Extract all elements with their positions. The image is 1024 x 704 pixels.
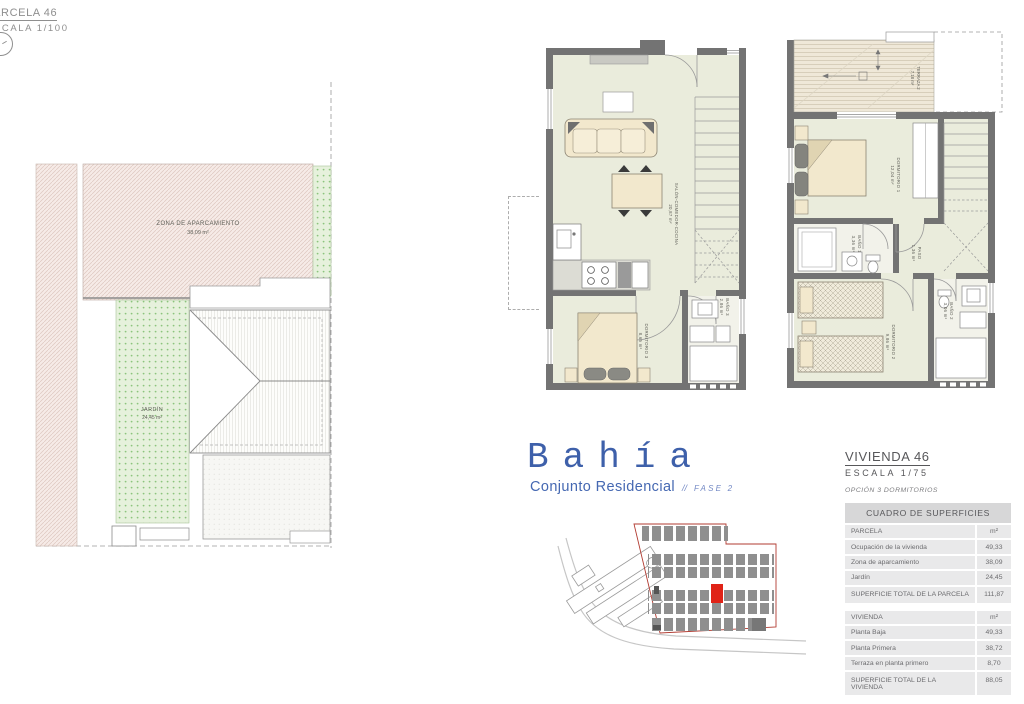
table-row: Planta Primera 38,72 <box>845 641 1011 654</box>
gf-salon-label: SALÓN-COMEDOR-COCINA <box>674 183 679 246</box>
ff-terraza-label: TERRAZA 2 <box>916 66 921 90</box>
parking-label: ZONA DE APARCAMIENTO <box>156 221 239 227</box>
ff-dorm1-label: DORMITORIO 1 <box>896 157 901 192</box>
first-floor-plan: TERRAZA 2 7,18 m² <box>778 28 1010 398</box>
row-value: 8,70 <box>977 657 1011 670</box>
gf-salon-area: 20,87 m² <box>668 204 673 224</box>
row-value: 38,09 <box>977 556 1011 569</box>
sidewalk-strip <box>36 164 77 546</box>
gf-coffee-table <box>603 92 633 112</box>
row-value: 88,05 <box>977 672 1011 695</box>
gf-sofa <box>565 119 657 157</box>
ff-dorm2-area: 9,86 m² <box>885 334 890 351</box>
table-row-total: SUPERFICIE TOTAL DE LA VIVIENDA 88,05 <box>845 672 1011 695</box>
ff-paso-label: PASO <box>917 247 922 260</box>
row-label: SUPERFICIE TOTAL DE LA VIVIENDA <box>845 672 975 695</box>
ff-bano2-area: 3,06 m² <box>943 303 948 320</box>
sheet-corner-title: PARCELA 46 ESCALA 1/100 <box>0 2 69 35</box>
table-header: CUADRO DE SUPERFICIES <box>845 503 1011 523</box>
unit-scale: ESCALA 1/75 <box>845 468 1011 478</box>
table-row: VIVIENDA m² <box>845 611 1011 624</box>
row-value: m² <box>977 525 1011 538</box>
ground-floor-plan: SALÓN-COMEDOR-COCINA 20,87 m² DORMITORIO… <box>540 34 752 396</box>
table-row: PARCELA m² <box>845 525 1011 538</box>
ff-dorm1-area: 12,04 m² <box>890 165 895 185</box>
gf-tv-unit <box>590 55 648 64</box>
gf-bano3-label: BAÑO 3 <box>725 298 730 316</box>
row-value: 24,45 <box>977 571 1011 584</box>
gf-dorm3-area: 8,65 m² <box>638 333 643 350</box>
map-selected-unit <box>711 584 723 603</box>
row-label: Jardín <box>845 571 975 584</box>
ff-terraza-area: 7,18 m² <box>910 71 915 86</box>
neighbor-unit-dashed <box>508 196 539 310</box>
unit-title: VIVIENDA 46 <box>845 449 930 466</box>
plan-sheet: PARCELA 46 ESCALA 1/100 <box>0 0 1024 704</box>
parking-area-value: 38,09 m² <box>187 230 209 236</box>
ff-dorm2-label: DORMITORIO 2 <box>891 324 896 359</box>
brand-phase: FASE 2 <box>694 484 734 493</box>
green-strip-right <box>313 166 331 296</box>
row-label: Planta Primera <box>845 641 975 654</box>
row-label: SUPERFICIE TOTAL DE LA PARCELA <box>845 587 975 603</box>
ff-bano1-area: 3,36 m² <box>851 236 856 253</box>
brand-separator: // <box>682 483 687 493</box>
gf-bano3-area: 2,86 m² <box>719 299 724 316</box>
row-label: Zona de aparcamiento <box>845 556 975 569</box>
gf-dorm3-label: DORMITORIO 3 <box>644 323 649 358</box>
brand-block: Bahía Conjunto Residencial // FASE 2 <box>527 437 734 495</box>
ff-bano1-label: BAÑO 1 <box>857 235 862 253</box>
surfaces-table: CUADRO DE SUPERFICIES PARCELA m² Ocupaci… <box>845 503 1011 695</box>
brand-subtitle: Conjunto Residencial <box>530 479 675 495</box>
ff-paso-area: 1,36 m² <box>911 245 916 262</box>
row-label: Ocupación de la vivienda <box>845 540 975 553</box>
table-row-total: SUPERFICIE TOTAL DE LA PARCELA 111,87 <box>845 587 1011 603</box>
garden-label: JARDÍN <box>141 406 163 413</box>
table-row: Zona de aparcamiento 38,09 <box>845 556 1011 569</box>
row-value: 111,87 <box>977 587 1011 603</box>
entry-step <box>112 526 136 546</box>
parcel-title: PARCELA 46 <box>0 7 57 21</box>
row-value: 38,72 <box>977 641 1011 654</box>
row-value: 49,33 <box>977 540 1011 553</box>
row-label: Terraza en planta primero <box>845 657 975 670</box>
garden-area-value: 24,45 m² <box>142 415 162 421</box>
ff-bano2-label: BAÑO 2 <box>949 302 954 320</box>
row-value: 49,33 <box>977 626 1011 639</box>
unit-option: OPCIÓN 3 DORMITORIOS <box>845 487 1011 494</box>
row-value: m² <box>977 611 1011 624</box>
ff-terrace: TERRAZA 2 7,18 m² <box>787 32 1002 112</box>
table-row: Terraza en planta primero 8,70 <box>845 657 1011 670</box>
site-plan: ZONA DE APARCAMIENTO 38,09 m² JARDÍN 24,… <box>28 78 336 560</box>
parcel-scale: ESCALA 1/100 <box>0 23 69 34</box>
table-row: Ocupación de la vivienda 49,33 <box>845 540 1011 553</box>
table-row: Jardín 24,45 <box>845 571 1011 584</box>
brand-name: Bahía <box>527 437 734 478</box>
rear-terrace <box>203 455 330 539</box>
row-label: PARCELA <box>845 525 975 538</box>
gf-bed <box>565 313 650 383</box>
north-symbol <box>0 32 13 56</box>
site-map <box>556 494 808 674</box>
unit-panel: VIVIENDA 46 ESCALA 1/75 OPCIÓN 3 DORMITO… <box>845 448 1011 695</box>
row-label: VIVIENDA <box>845 611 975 624</box>
row-label: Planta Baja <box>845 626 975 639</box>
table-row: Planta Baja 49,33 <box>845 626 1011 639</box>
